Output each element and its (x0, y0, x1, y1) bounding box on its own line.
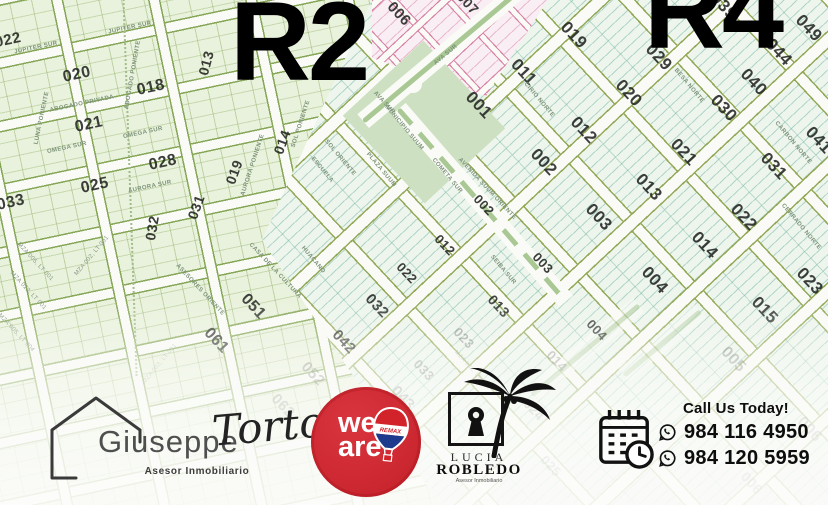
calendar-clock-icon (596, 406, 654, 472)
phone-row-2: 984 120 5959 (658, 447, 810, 470)
footer: Giuseppe Tortora Asesor Inmobiliario we … (0, 0, 828, 505)
lucia-tagline: Asesor Inmobiliario (438, 478, 520, 484)
whatsapp-icon (658, 423, 677, 442)
giuseppe-tortora-logo: Giuseppe Tortora Asesor Inmobiliario (42, 386, 342, 496)
phone-number: 984 116 4950 (684, 421, 809, 444)
call-heading: Call Us Today! (683, 400, 810, 417)
lot-map-poster: 0220200180130210280250330310320140190510… (0, 0, 828, 505)
robledo-name: ROBLEDO (436, 462, 522, 479)
brand-tagline: Asesor Inmobiliario (112, 466, 282, 477)
phone-row-1: 984 116 4950 (658, 421, 810, 444)
remax-we-are-badge: we are REMAX (311, 387, 421, 497)
keyhole-icon (462, 406, 490, 438)
contact-block: Call Us Today! 984 116 4950 984 120 5959 (596, 398, 816, 488)
phone-number: 984 120 5959 (684, 447, 810, 470)
whatsapp-icon (658, 449, 677, 468)
remax-balloon-icon: REMAX (367, 404, 413, 466)
lucia-robledo-logo: LUCIA ROBLEDO Asesor Inmobiliario (438, 370, 568, 490)
contact-text-column: Call Us Today! 984 116 4950 984 120 5959 (658, 400, 810, 473)
